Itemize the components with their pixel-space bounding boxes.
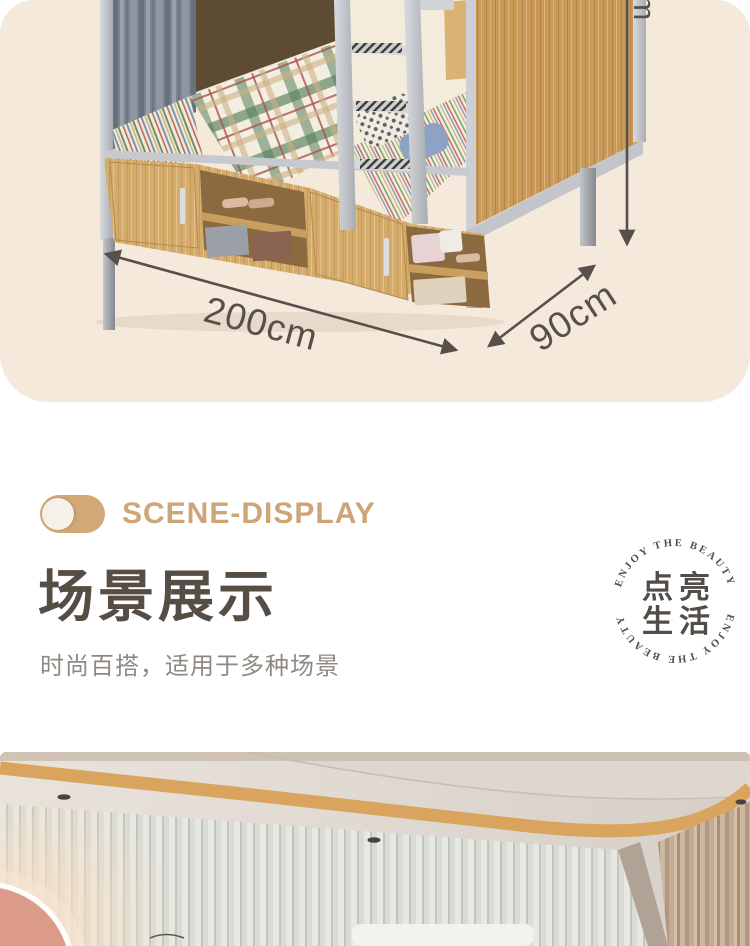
stamp-line2: 生活 xyxy=(642,604,716,639)
toggle-icon xyxy=(40,495,105,533)
section-subtitle: 时尚百搭，适用于多种场景 xyxy=(40,646,340,681)
section-title: 场景展示 xyxy=(38,552,278,633)
bed-leg-right xyxy=(580,168,596,246)
headboard xyxy=(352,924,534,946)
room-scene-photo xyxy=(0,752,750,946)
section-eyebrow-label: SCENE-DISPLAY xyxy=(122,497,376,531)
bed-leg-left xyxy=(103,238,115,330)
toggle-knob xyxy=(42,498,74,530)
cabinet-handle-left xyxy=(180,188,185,224)
stamp-line1: 点亮 xyxy=(642,570,716,605)
room-illustration xyxy=(0,752,750,946)
enjoy-beauty-stamp: ENJOY THE BEAUTY ENJOY THE BEAUTY 点亮 生活 xyxy=(599,526,750,678)
section-eyebrow: SCENE-DISPLAY xyxy=(40,495,376,533)
bunk-bed-photo xyxy=(0,0,750,402)
product-photo-section: cm 200cm 90cm xyxy=(0,0,750,402)
scene-display-section: SCENE-DISPLAY 场景展示 时尚百搭，适用于多种场景 ENJOY TH… xyxy=(0,402,750,752)
product-detail-page: cm 200cm 90cm SCENE-DISPLAY 场景展示 时尚百搭，适用… xyxy=(0,0,750,946)
dimension-height-label: cm xyxy=(626,0,662,26)
cabinet-handle-mid xyxy=(384,238,389,276)
side-panel xyxy=(464,0,646,308)
